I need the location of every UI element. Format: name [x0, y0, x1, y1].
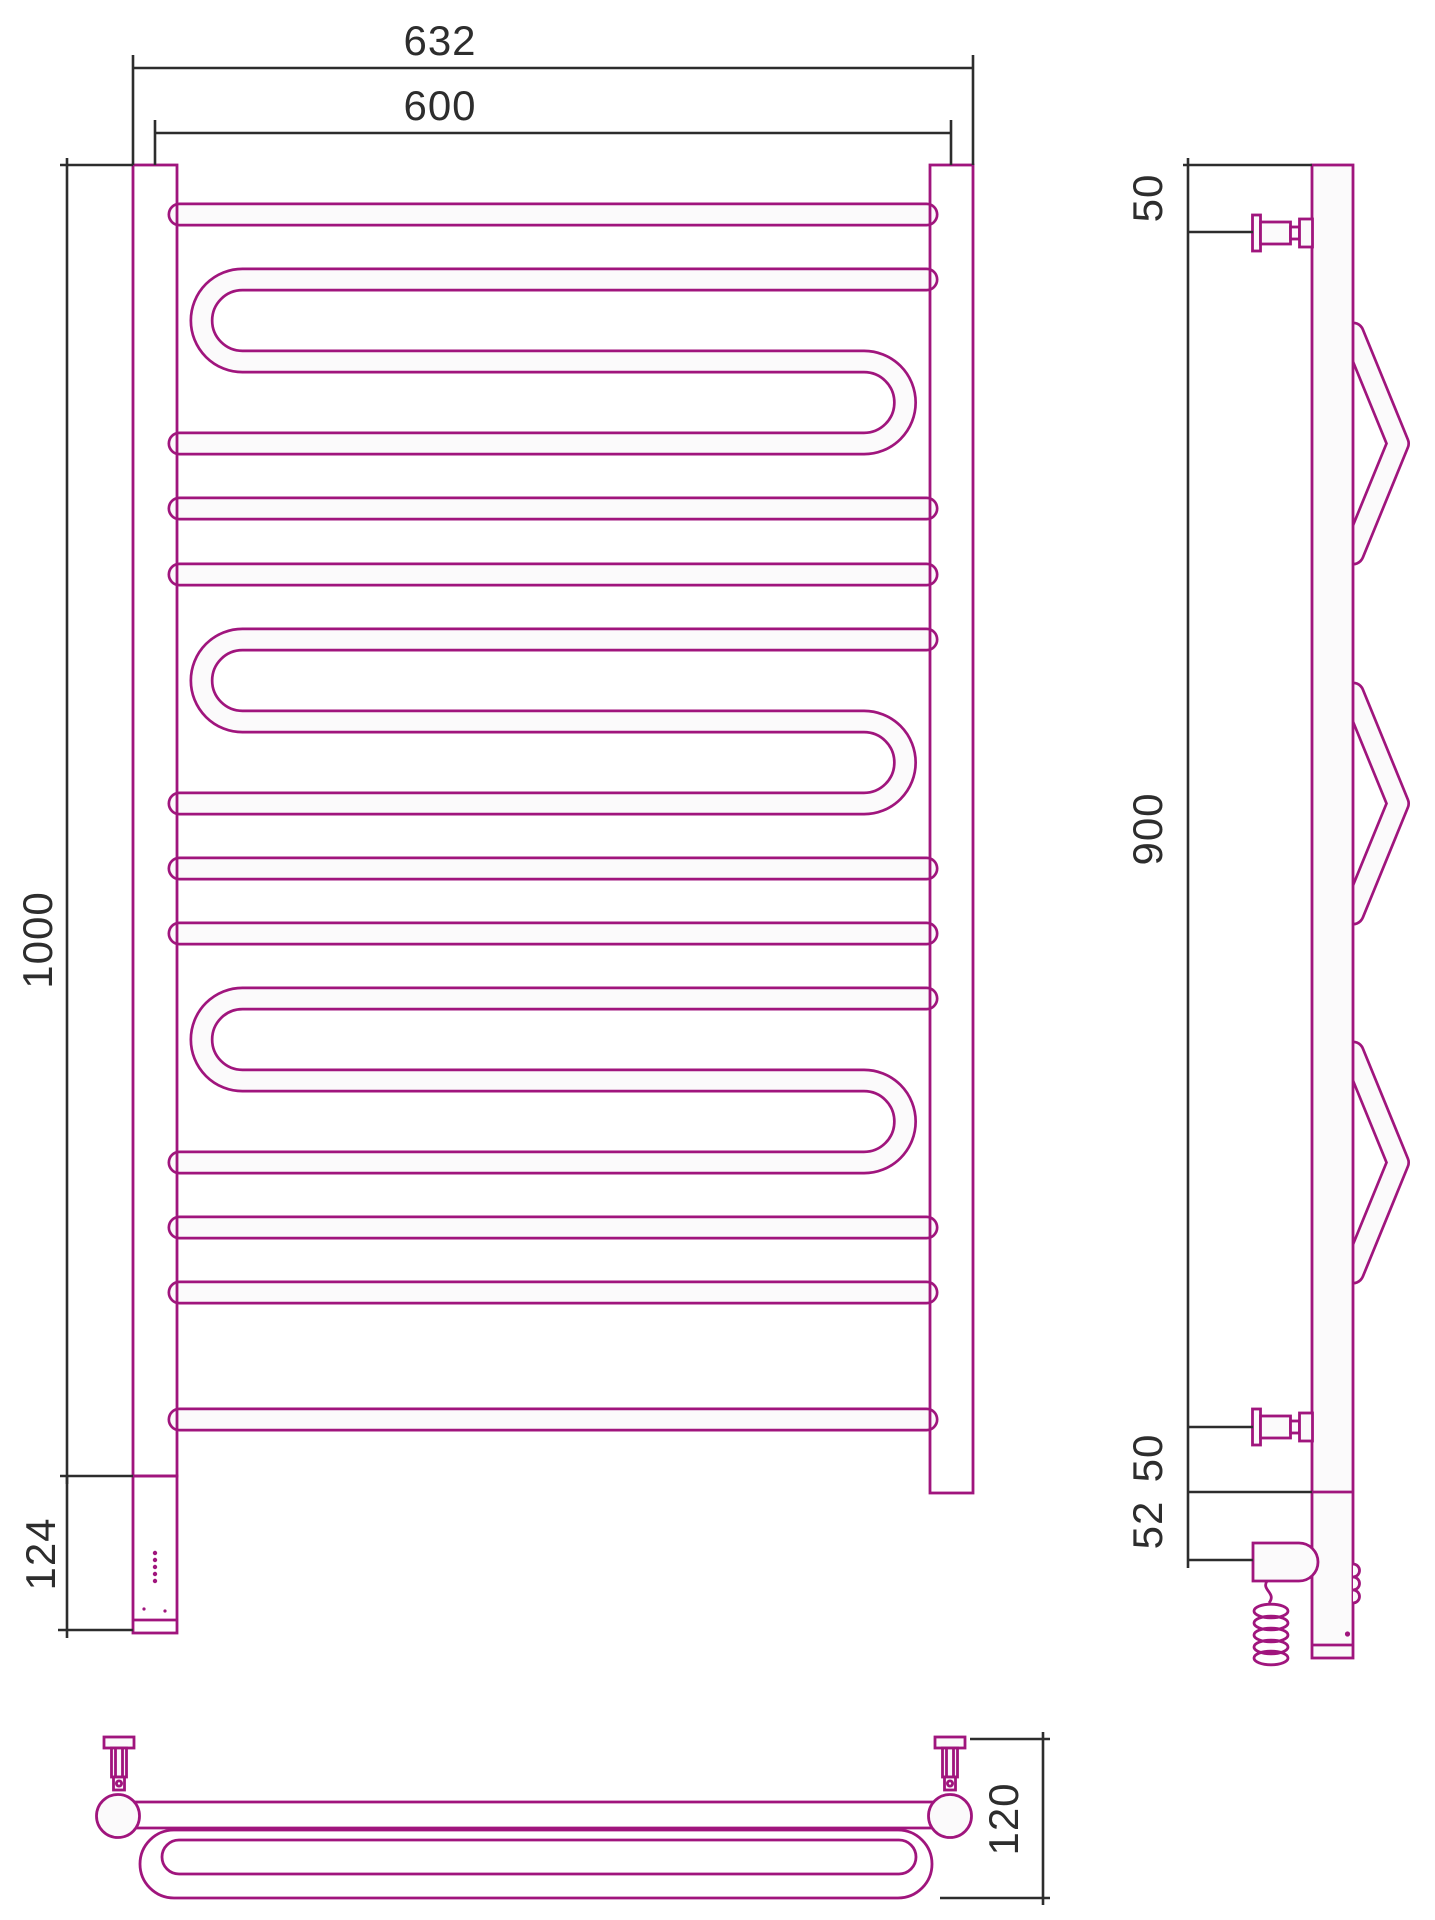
front-view: 632 600 1000 124	[14, 17, 973, 1638]
bottom-bracket-left	[104, 1737, 134, 1790]
right-riser-section	[929, 1795, 972, 1838]
heater-housing	[133, 1476, 177, 1633]
cord-lead	[1266, 1581, 1272, 1603]
dim-side-top-offset: 50	[1124, 174, 1171, 223]
front-dimensions: 632 600 1000 124	[14, 17, 973, 1638]
left-riser-tube	[133, 165, 177, 1476]
side-dimensions: 50 900 50 52	[1124, 158, 1312, 1568]
dim-side-element-offset: 52	[1124, 1501, 1171, 1550]
bottom-coil-loop	[140, 1830, 932, 1898]
wall-bracket-bottom	[1253, 1409, 1313, 1445]
dim-side-span: 900	[1124, 792, 1171, 865]
status-led-dots	[142, 1551, 166, 1613]
towel-rail-technical-drawing: 632 600 1000 124	[0, 0, 1435, 1920]
dim-front-height: 1000	[14, 891, 61, 988]
wall-bracket-top	[1253, 215, 1313, 251]
bottom-bracket-right	[935, 1737, 965, 1790]
bottom-rail-tube	[118, 1802, 950, 1828]
drawing-canvas: 632 600 1000 124	[0, 0, 1435, 1920]
front-serpentine-coils	[180, 280, 927, 1163]
front-rungs	[180, 215, 927, 1420]
left-riser-section	[97, 1795, 140, 1838]
dim-front-outer-width: 632	[403, 17, 476, 64]
dim-bottom-depth: 120	[980, 1782, 1027, 1855]
dim-side-bottom-offset: 50	[1124, 1434, 1171, 1483]
drain-dot	[1345, 1631, 1350, 1636]
side-coil-profiles	[1353, 334, 1398, 1273]
bottom-view: 120	[97, 1732, 1051, 1905]
dim-front-center-width: 600	[403, 82, 476, 129]
heating-element	[1253, 1543, 1318, 1665]
side-view: 50 900 50 52	[1124, 158, 1398, 1665]
dim-front-housing-height: 124	[17, 1517, 64, 1590]
side-riser-tube	[1312, 165, 1353, 1658]
cable-gland-bumps	[1353, 1564, 1360, 1603]
coiled-cord	[1254, 1604, 1288, 1665]
